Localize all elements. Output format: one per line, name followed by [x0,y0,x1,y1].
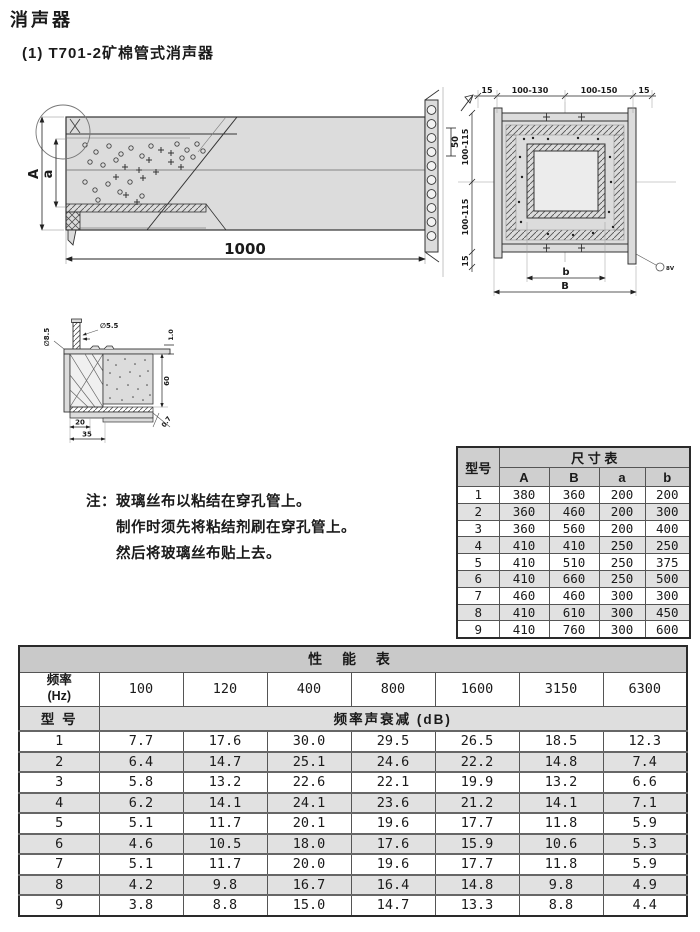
dim-top-100-150: 100-150 [581,86,618,95]
cell-model: 8 [19,875,99,896]
cross-section-drawing: 15 100-130 100-150 15 100-115 100-115 15… [458,82,700,304]
cell-model: 2 [457,503,499,520]
cell-b: 200 [645,487,690,504]
attenuation-header: 频率声衰减 (dB) [99,706,687,731]
dim-left-100-115b: 100-115 [461,198,470,235]
size-table-title: 尺 寸 表 [499,447,690,468]
weld-callout-circle [656,263,664,271]
freq-120: 120 [183,672,267,706]
cell-model: 4 [19,793,99,814]
cell-db-100: 4.6 [99,834,183,855]
cell-db-1600: 17.7 [435,854,519,875]
weld-callout-label: 8V [666,266,675,272]
cell-model: 1 [457,487,499,504]
cell-b: 500 [645,570,690,587]
cell-model: 7 [19,854,99,875]
cell-db-120: 11.7 [183,854,267,875]
performance-table-row: 3 5.8 13.2 22.6 22.1 19.9 13.2 6.6 [19,772,687,793]
freq-800: 800 [351,672,435,706]
top-flange [64,349,170,354]
cell-B: 360 [549,487,599,504]
cell-db-400: 30.0 [267,731,351,752]
cell-db-6300: 4.4 [603,895,687,916]
cell-db-3150: 14.1 [519,793,603,814]
cell-db-1600: 17.7 [435,813,519,834]
cell-db-1600: 15.9 [435,834,519,855]
cell-db-6300: 6.6 [603,772,687,793]
cell-A: 360 [499,520,549,537]
cell-db-3150: 18.5 [519,731,603,752]
cell-db-3150: 11.8 [519,854,603,875]
cell-db-120: 8.8 [183,895,267,916]
cell-B: 510 [549,554,599,571]
cell-db-1600: 13.3 [435,895,519,916]
cell-A: 360 [499,503,549,520]
dim-label-07: 0.7 [160,415,173,429]
cell-db-120: 11.7 [183,813,267,834]
cell-db-400: 18.0 [267,834,351,855]
cell-db-6300: 5.3 [603,834,687,855]
page-title: 消声器 [10,6,73,32]
cell-db-400: 16.7 [267,875,351,896]
cell-B: 410 [549,537,599,554]
dim-label-B: B [561,281,569,292]
cell-a: 250 [599,554,645,571]
dim-label-phi85: ∅8.5 [43,328,51,347]
cell-model: 7 [457,587,499,604]
detail-drawing: ∅8.5 ∅5.5 1.0 60 0.7 20 35 [40,315,225,457]
size-table-row: 8 410 610 300 450 [457,604,690,621]
cell-db-6300: 7.4 [603,752,687,773]
cell-B: 560 [549,520,599,537]
cell-db-100: 7.7 [99,731,183,752]
cell-db-3150: 13.2 [519,772,603,793]
size-table-row: 4 410 410 250 250 [457,537,690,554]
cell-A: 410 [499,621,549,638]
model-header: 型 号 [19,706,99,731]
dim-label-35: 35 [82,431,92,439]
performance-table-row: 4 6.2 14.1 24.1 23.6 21.2 14.1 7.1 [19,793,687,814]
cell-B: 460 [549,587,599,604]
cell-model: 2 [19,752,99,773]
air-passage [534,151,598,211]
cell-A: 410 [499,570,549,587]
cell-model: 5 [457,554,499,571]
cell-db-400: 20.1 [267,813,351,834]
size-table-row: 7 460 460 300 300 [457,587,690,604]
cell-db-100: 6.4 [99,752,183,773]
cell-db-100: 4.2 [99,875,183,896]
dim-label-20: 20 [75,419,85,427]
cell-b: 300 [645,587,690,604]
cell-b: 300 [645,503,690,520]
note-line: 玻璃丝布以粘结在穿孔管上。 [116,490,356,516]
size-table: 型号 尺 寸 表 A B a b 1 380 360 200 200 2 360… [456,446,691,639]
dim-top-15l: 15 [481,86,493,95]
dim-label-b: b [562,267,569,278]
cell-B: 660 [549,570,599,587]
cell-db-1600: 14.8 [435,875,519,896]
note-block: 注： 玻璃丝布以粘结在穿孔管上。 制作时须先将粘结剂刷在穿孔管上。 然后将玻璃丝… [86,490,406,567]
dim-top-15r: 15 [638,86,650,95]
cell-a: 200 [599,520,645,537]
dim-top-100-130: 100-130 [512,86,549,95]
cell-model: 6 [19,834,99,855]
cell-model: 4 [457,537,499,554]
size-table-row: 9 410 760 300 600 [457,621,690,638]
cell-a: 250 [599,570,645,587]
cell-db-120: 10.5 [183,834,267,855]
cell-db-400: 20.0 [267,854,351,875]
cell-b: 375 [645,554,690,571]
performance-table-row: 1 7.7 17.6 30.0 29.5 26.5 18.5 12.3 [19,731,687,752]
dim-left-15: 15 [461,255,470,267]
note-prefix: 注： [86,490,116,567]
cell-db-120: 13.2 [183,772,267,793]
note-line: 然后将玻璃丝布贴上去。 [116,542,356,568]
cell-model: 6 [457,570,499,587]
cell-db-3150: 9.8 [519,875,603,896]
dim-left-100-115a: 100-115 [461,128,470,165]
freq-6300: 6300 [603,672,687,706]
freq-3150: 3150 [519,672,603,706]
cell-A: 380 [499,487,549,504]
performance-table-row: 7 5.1 11.7 20.0 19.6 17.7 11.8 5.9 [19,854,687,875]
performance-table-row: 9 3.8 8.8 15.0 14.7 13.3 8.8 4.4 [19,895,687,916]
cell-db-6300: 4.9 [603,875,687,896]
cell-db-800: 16.4 [351,875,435,896]
dim-label-A: A [27,169,42,179]
cell-db-6300: 5.9 [603,854,687,875]
cell-B: 760 [549,621,599,638]
size-col-b: b [645,468,690,487]
side-view-drawing: A a 50 1000 [30,82,460,294]
dim-label-1000: 1000 [224,240,266,258]
performance-table-row: 8 4.2 9.8 16.7 16.4 14.8 9.8 4.9 [19,875,687,896]
size-table-row: 2 360 460 200 300 [457,503,690,520]
size-table-model-header: 型号 [457,447,499,487]
cell-A: 410 [499,537,549,554]
cell-model: 3 [19,772,99,793]
cell-a: 200 [599,503,645,520]
cell-db-100: 5.1 [99,854,183,875]
cell-b: 250 [645,537,690,554]
cell-db-800: 23.6 [351,793,435,814]
cell-a: 200 [599,487,645,504]
freq-100: 100 [99,672,183,706]
performance-table-title: 性 能 表 [19,646,687,672]
section-subtitle: (1) T701-2矿棉管式消声器 [22,42,214,63]
dim-label-10: 1.0 [167,329,175,341]
dim-label-a: a [41,170,56,179]
cell-b: 450 [645,604,690,621]
cell-model: 3 [457,520,499,537]
mineral-wool [103,354,153,404]
cell-db-100: 3.8 [99,895,183,916]
cell-db-3150: 11.8 [519,813,603,834]
cell-db-100: 5.8 [99,772,183,793]
cell-db-120: 14.1 [183,793,267,814]
size-col-a: a [599,468,645,487]
size-table-row: 1 380 360 200 200 [457,487,690,504]
freq-400: 400 [267,672,351,706]
performance-table-row: 2 6.4 14.7 25.1 24.6 22.2 14.8 7.4 [19,752,687,773]
cell-a: 300 [599,604,645,621]
size-col-B: B [549,468,599,487]
freq-1600: 1600 [435,672,519,706]
cell-A: 410 [499,554,549,571]
perforated-strip [70,407,153,412]
cell-db-3150: 10.6 [519,834,603,855]
size-table-row: 3 360 560 200 400 [457,520,690,537]
cell-db-400: 22.6 [267,772,351,793]
size-table-row: 6 410 660 250 500 [457,570,690,587]
cell-db-800: 29.5 [351,731,435,752]
cell-A: 460 [499,587,549,604]
dim-label-60: 60 [163,376,171,386]
cell-B: 610 [549,604,599,621]
size-col-A: A [499,468,549,487]
cell-db-6300: 12.3 [603,731,687,752]
cell-model: 1 [19,731,99,752]
performance-table: 性 能 表 频率 (Hz) 100 120 400 800 1600 3150 … [18,645,688,917]
cell-model: 8 [457,604,499,621]
size-table-row: 5 410 510 250 375 [457,554,690,571]
cell-db-120: 9.8 [183,875,267,896]
cell-db-120: 14.7 [183,752,267,773]
cell-db-800: 22.1 [351,772,435,793]
cell-model: 9 [457,621,499,638]
cell-db-1600: 26.5 [435,731,519,752]
cell-model: 9 [19,895,99,916]
cell-db-3150: 14.8 [519,752,603,773]
cell-db-400: 25.1 [267,752,351,773]
cell-B: 460 [549,503,599,520]
cell-A: 410 [499,604,549,621]
cell-db-6300: 7.1 [603,793,687,814]
cell-db-1600: 21.2 [435,793,519,814]
cell-db-1600: 19.9 [435,772,519,793]
cell-db-6300: 5.9 [603,813,687,834]
cell-b: 400 [645,520,690,537]
note-lines: 玻璃丝布以粘结在穿孔管上。 制作时须先将粘结剂刷在穿孔管上。 然后将玻璃丝布贴上… [116,490,356,567]
cell-db-800: 24.6 [351,752,435,773]
performance-table-row: 6 4.6 10.5 18.0 17.6 15.9 10.6 5.3 [19,834,687,855]
cell-db-100: 5.1 [99,813,183,834]
cell-db-1600: 22.2 [435,752,519,773]
cell-db-800: 17.6 [351,834,435,855]
cell-db-3150: 8.8 [519,895,603,916]
cell-db-100: 6.2 [99,793,183,814]
dim-label-phi55: ∅5.5 [100,322,119,330]
cell-db-800: 19.6 [351,854,435,875]
freq-header: 频率 (Hz) [19,672,99,706]
cell-db-800: 14.7 [351,895,435,916]
cell-b: 600 [645,621,690,638]
cell-db-400: 15.0 [267,895,351,916]
cell-db-800: 19.6 [351,813,435,834]
note-line: 制作时须先将粘结剂刷在穿孔管上。 [116,516,356,542]
performance-table-row: 5 5.1 11.7 20.1 19.6 17.7 11.8 5.9 [19,813,687,834]
cell-model: 5 [19,813,99,834]
cell-db-400: 24.1 [267,793,351,814]
cell-a: 300 [599,587,645,604]
cell-a: 300 [599,621,645,638]
cell-a: 250 [599,537,645,554]
cell-db-120: 17.6 [183,731,267,752]
rivet [73,323,80,351]
